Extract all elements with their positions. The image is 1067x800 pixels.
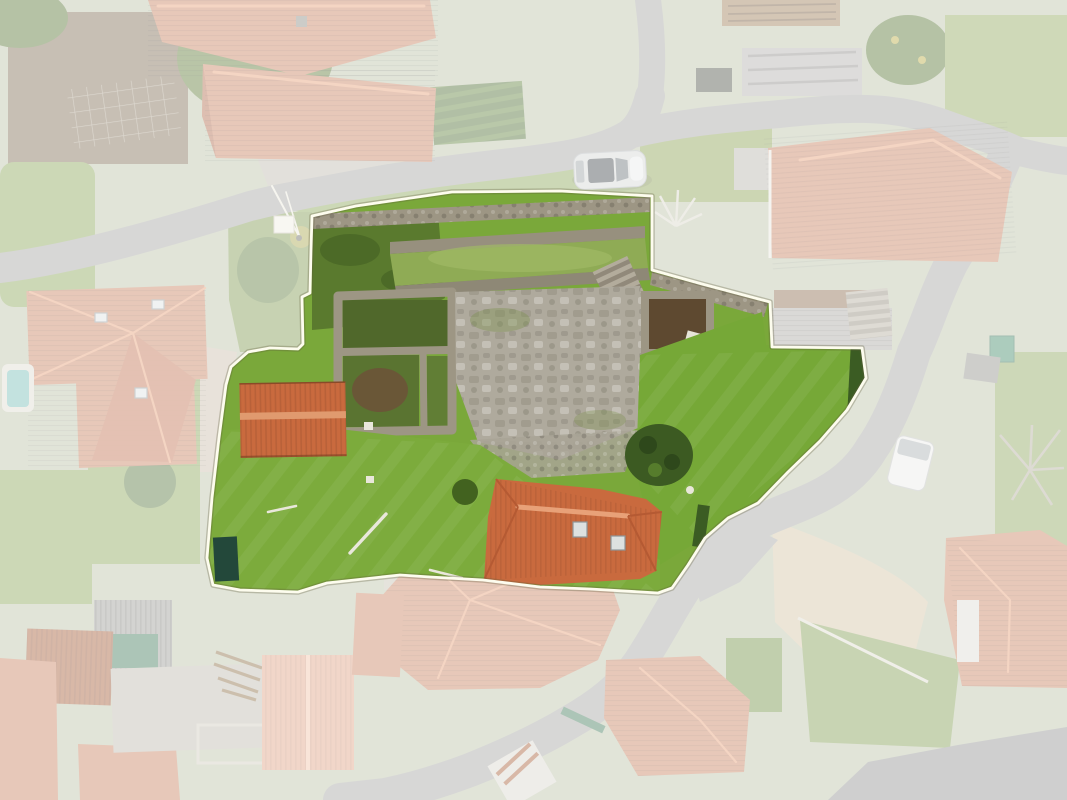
small-bush [452, 479, 478, 505]
white-stone-1 [364, 422, 373, 430]
aerial-photo-of-property [0, 0, 1067, 800]
plot-outbuilding-roof [239, 382, 346, 458]
white-stone-2 [366, 476, 374, 483]
ruin-room-se [427, 356, 448, 426]
dark-green-tree [625, 424, 693, 486]
dark-tarp [213, 536, 239, 581]
skylight-1 [573, 522, 587, 537]
ruin-room-nw [343, 300, 448, 348]
ruin-west-rooms [338, 292, 452, 432]
screenshot-root [0, 0, 1067, 800]
white-stone-3 [686, 486, 694, 494]
skylight-2 [611, 536, 625, 550]
